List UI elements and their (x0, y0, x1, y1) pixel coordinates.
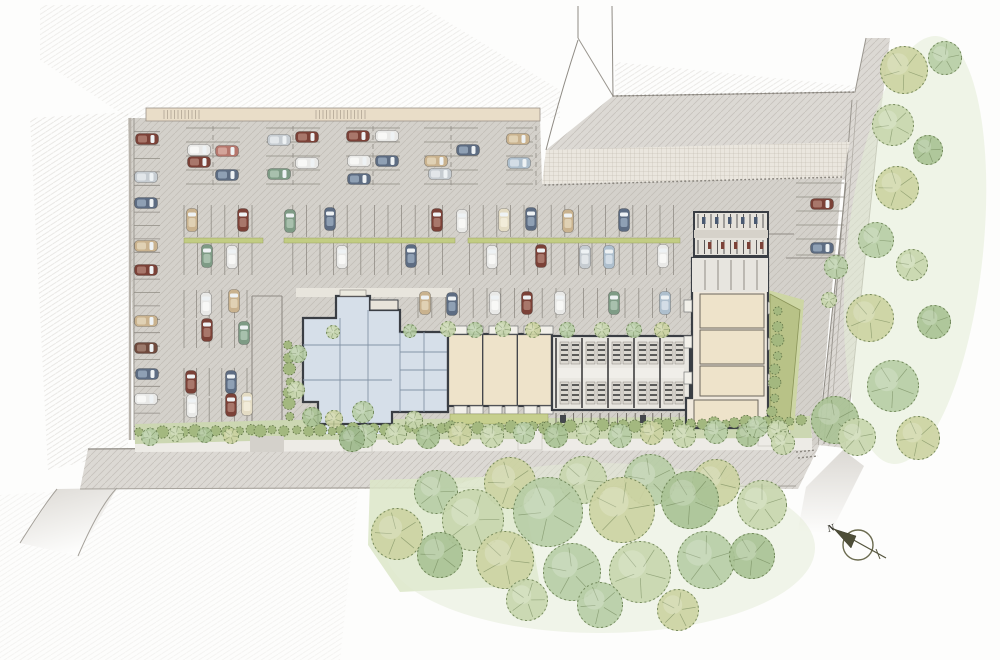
tree (640, 421, 664, 445)
retaining-wall (146, 108, 540, 121)
car-roof (459, 219, 466, 228)
tree-highlight (882, 173, 902, 193)
car-roof (492, 301, 499, 310)
car (136, 134, 159, 145)
tree (838, 418, 876, 456)
car (188, 157, 211, 168)
car (508, 158, 531, 169)
tree-highlight (512, 585, 531, 604)
car-roof (660, 254, 667, 263)
tree (544, 424, 568, 448)
tree (302, 407, 322, 427)
tree-highlight (670, 480, 696, 506)
car-roof (190, 159, 199, 166)
car-windshield (188, 399, 196, 403)
car-windshield (150, 395, 154, 403)
tree (168, 426, 184, 442)
carport-vehicle (754, 217, 758, 224)
car-roof (138, 371, 147, 378)
car-roof (138, 136, 147, 143)
car-windshield (491, 296, 499, 300)
car (604, 246, 615, 269)
tree-highlight (225, 430, 232, 437)
car-windshield (826, 200, 830, 208)
car (490, 292, 501, 315)
car-windshield (311, 133, 315, 141)
car (429, 169, 452, 180)
tree-highlight (328, 413, 336, 421)
car-roof (378, 133, 387, 140)
car (135, 265, 158, 276)
car-roof (137, 243, 146, 250)
tree (872, 104, 914, 146)
tree-highlight (612, 428, 623, 439)
car-roof (813, 245, 822, 252)
tree (440, 321, 456, 337)
car-roof (422, 301, 429, 310)
tree (506, 579, 548, 621)
car-roof (510, 160, 519, 167)
tree (495, 321, 511, 337)
tree-highlight (878, 110, 897, 129)
car-windshield (564, 214, 572, 218)
car-windshield (150, 199, 154, 207)
car-roof (427, 158, 436, 165)
unit-balcony (524, 406, 537, 414)
site-plan-drawing: N (0, 0, 1000, 660)
car-roof (204, 254, 211, 263)
car-windshield (527, 212, 535, 216)
car-roof (489, 255, 496, 264)
tree-highlight (405, 326, 411, 332)
tree (771, 431, 795, 455)
shrub (770, 364, 780, 374)
car (285, 210, 296, 233)
car-roof (137, 318, 146, 325)
tree (594, 322, 610, 338)
tree-highlight (863, 227, 879, 243)
tree (371, 508, 423, 560)
carport-vehicle (715, 217, 719, 224)
carport-vehicle (747, 242, 751, 249)
car (457, 145, 480, 156)
car-windshield (362, 132, 366, 140)
tree-highlight (420, 429, 431, 440)
median-planting-strip (468, 238, 680, 243)
carport-vehicle (760, 242, 764, 249)
car-windshield (448, 297, 456, 301)
tree-highlight (305, 410, 314, 419)
tree (287, 381, 305, 399)
car (457, 210, 468, 233)
car-roof (244, 402, 251, 411)
car-roof (565, 219, 572, 228)
car-windshield (230, 294, 238, 298)
tree-highlight (561, 324, 568, 331)
car-windshield (433, 213, 441, 217)
car-roof (538, 254, 545, 263)
tree-highlight (580, 425, 591, 436)
tree-highlight (770, 423, 780, 433)
median-planting-strip (184, 238, 263, 243)
car (487, 246, 498, 269)
car-roof (218, 148, 227, 155)
car-roof (189, 404, 196, 413)
car-roof (349, 133, 358, 140)
car (187, 209, 198, 232)
car-roof (137, 267, 146, 274)
car-roof (240, 218, 247, 227)
car (507, 134, 530, 145)
shrub (328, 427, 336, 435)
car (187, 395, 198, 418)
car-roof (204, 328, 211, 337)
car (135, 241, 158, 252)
car-windshield (522, 135, 526, 143)
car-windshield (391, 157, 395, 165)
drive-curb-cut (250, 436, 284, 452)
unit-balcony (505, 406, 518, 414)
car-windshield (458, 214, 466, 218)
car (347, 131, 370, 142)
car-windshield (581, 250, 589, 254)
car-roof (449, 302, 456, 311)
tree (626, 322, 642, 338)
tree-highlight (644, 425, 655, 436)
tree-highlight (584, 589, 605, 610)
car (226, 394, 237, 417)
car-windshield (610, 296, 618, 300)
tree (513, 477, 583, 547)
tree-highlight (708, 424, 719, 435)
car (268, 135, 291, 146)
car-windshield (151, 135, 155, 143)
car (135, 316, 158, 327)
tree (729, 533, 775, 579)
car-windshield (151, 370, 155, 378)
tree-highlight (745, 488, 768, 511)
car-windshield (523, 159, 527, 167)
tree-highlight (853, 301, 875, 323)
car (526, 208, 537, 231)
car (268, 169, 291, 180)
car-windshield (150, 266, 154, 274)
tree-highlight (424, 539, 445, 560)
tree-highlight (552, 552, 578, 578)
car-roof (524, 301, 531, 310)
shrub (769, 376, 781, 388)
tree-highlight (170, 428, 177, 435)
car (202, 319, 213, 342)
tree (821, 292, 837, 308)
tree-highlight (903, 423, 923, 443)
car-windshield (227, 398, 235, 402)
tree (608, 424, 632, 448)
tree (896, 249, 928, 281)
right-building-unit (700, 330, 764, 364)
tree-highlight (618, 550, 646, 578)
tree-highlight (292, 348, 300, 356)
parked-motorcycle (560, 415, 566, 423)
car (242, 393, 253, 416)
tree-highlight (199, 429, 206, 436)
car (325, 208, 336, 231)
tree-highlight (749, 419, 759, 429)
car (216, 170, 239, 181)
hatch-patch (30, 112, 128, 470)
tree (928, 41, 962, 75)
car-windshield (187, 375, 195, 379)
tree (917, 305, 951, 339)
hatch-patch (40, 5, 560, 118)
car-windshield (150, 344, 154, 352)
shrub (283, 397, 295, 409)
hatch-patch (615, 62, 855, 96)
tree (352, 401, 374, 423)
car-windshield (311, 159, 315, 167)
car (188, 145, 211, 156)
tree (289, 345, 307, 363)
car-windshield (537, 249, 545, 253)
car-windshield (228, 250, 236, 254)
right-building-unit (700, 366, 764, 396)
car-roof (378, 158, 387, 165)
car-roof (203, 302, 210, 311)
car-windshield (407, 249, 415, 253)
car (580, 246, 591, 269)
car-windshield (203, 323, 211, 327)
tree (824, 255, 848, 279)
car-windshield (620, 213, 628, 217)
shrub (254, 425, 266, 437)
car-roof (339, 255, 346, 264)
car (376, 131, 399, 142)
tree (480, 424, 504, 448)
unit-balcony (470, 406, 483, 414)
car-windshield (286, 214, 294, 218)
carport-vehicle (734, 242, 738, 249)
car-windshield (605, 250, 613, 254)
tree-highlight (775, 435, 786, 446)
shrub (293, 426, 301, 434)
car-roof (270, 171, 279, 178)
tree (846, 294, 894, 342)
car-roof (611, 301, 618, 310)
car-windshield (240, 326, 248, 330)
car-roof (813, 201, 822, 208)
car-windshield (227, 375, 235, 379)
car-windshield (659, 249, 667, 253)
tree (913, 135, 943, 165)
car-windshield (523, 296, 531, 300)
car (609, 292, 620, 315)
car (811, 199, 834, 210)
car-roof (431, 171, 440, 178)
car-windshield (203, 158, 207, 166)
car (376, 156, 399, 167)
tree (875, 166, 919, 210)
unit-balcony (684, 336, 692, 348)
tree (737, 480, 787, 530)
shrub (796, 415, 806, 425)
carport-vehicle (741, 217, 745, 224)
shrub (283, 363, 295, 375)
car-roof (137, 174, 146, 181)
car (348, 174, 371, 185)
car-roof (228, 403, 235, 412)
tree (661, 471, 719, 529)
tree-highlight (686, 540, 712, 566)
carport-vehicle (721, 242, 725, 249)
car-windshield (150, 317, 154, 325)
tree-highlight (343, 430, 355, 442)
carport-vehicle (702, 217, 706, 224)
shrub (767, 406, 777, 416)
shrub (773, 322, 783, 332)
car-windshield (283, 170, 287, 178)
carport-drive-lane (694, 230, 768, 238)
tree (405, 411, 423, 429)
car-windshield (203, 146, 207, 154)
tree-highlight (421, 477, 441, 497)
car-windshield (150, 242, 154, 250)
tree (896, 416, 940, 460)
car (135, 198, 158, 209)
car (432, 209, 443, 232)
car-windshield (556, 296, 564, 300)
tree (513, 422, 535, 444)
car (811, 243, 834, 254)
tree-highlight (736, 540, 757, 561)
tree (704, 420, 728, 444)
carport-vehicle (708, 242, 712, 249)
car (337, 246, 348, 269)
tree-highlight (442, 323, 449, 330)
shrub (279, 426, 289, 436)
tree-highlight (628, 324, 635, 331)
car (296, 158, 319, 169)
tree-highlight (485, 540, 511, 566)
tree (677, 531, 735, 589)
tree-highlight (527, 324, 534, 331)
car (522, 292, 533, 315)
car-roof (582, 255, 589, 264)
car-windshield (440, 157, 444, 165)
north-arrow-compass: N (825, 522, 886, 560)
unit-stoop (454, 326, 467, 334)
tree-highlight (484, 428, 495, 439)
car (660, 292, 671, 315)
tree (326, 325, 340, 339)
tree-highlight (451, 498, 479, 526)
car (348, 156, 371, 167)
tree-highlight (828, 259, 839, 270)
tree (325, 410, 343, 428)
car-windshield (188, 213, 196, 217)
tree-highlight (922, 310, 937, 325)
garage-corridor (558, 368, 684, 378)
car-roof (137, 200, 146, 207)
tree-highlight (548, 428, 559, 439)
clubhouse-entry-steps (340, 290, 366, 296)
tree-highlight (469, 324, 476, 331)
tree (417, 532, 463, 578)
car-windshield (391, 132, 395, 140)
shrub (770, 394, 778, 402)
car (555, 292, 566, 315)
tree (589, 477, 655, 543)
car-windshield (488, 250, 496, 254)
tree-highlight (144, 431, 152, 439)
car-windshield (202, 297, 210, 301)
car-windshield (661, 296, 669, 300)
tree (223, 428, 239, 444)
car-roof (218, 172, 227, 179)
tree-highlight (901, 254, 915, 268)
car-roof (501, 218, 508, 227)
tree (746, 416, 768, 438)
car (499, 209, 510, 232)
tree (141, 428, 159, 446)
car (619, 209, 630, 232)
car-roof (241, 331, 248, 340)
car-roof (298, 160, 307, 167)
tree (657, 589, 699, 631)
tree (577, 582, 623, 628)
tree-highlight (818, 403, 840, 425)
car-windshield (500, 213, 508, 217)
car-roof (228, 380, 235, 389)
car (536, 245, 547, 268)
car (216, 146, 239, 157)
car-windshield (239, 213, 247, 217)
tree-highlight (355, 404, 365, 414)
tree-highlight (887, 53, 909, 75)
unit-balcony (684, 372, 692, 384)
car (186, 371, 197, 394)
tree-highlight (566, 463, 588, 485)
car-roof (298, 134, 307, 141)
unit-balcony (454, 406, 467, 414)
car-windshield (326, 212, 334, 216)
compass-arrowhead (834, 529, 856, 548)
carport-vehicle (728, 217, 732, 224)
tree (467, 322, 483, 338)
tree-highlight (452, 426, 463, 437)
car-roof (662, 301, 669, 310)
car (135, 394, 158, 405)
tree (672, 424, 696, 448)
tree-highlight (516, 425, 526, 435)
car-roof (188, 380, 195, 389)
car-roof (509, 136, 518, 143)
tree-highlight (379, 516, 402, 539)
tree-highlight (875, 368, 898, 391)
tree (385, 423, 407, 445)
car (563, 210, 574, 233)
car (296, 132, 319, 143)
right-building-unit (700, 294, 764, 328)
car-windshield (231, 147, 235, 155)
car-roof (229, 255, 236, 264)
car-roof (350, 158, 359, 165)
shrub (284, 341, 292, 349)
shrub (303, 426, 313, 436)
car-roof (621, 218, 628, 227)
car-roof (434, 218, 441, 227)
car-windshield (444, 170, 448, 178)
tree-highlight (663, 595, 682, 614)
